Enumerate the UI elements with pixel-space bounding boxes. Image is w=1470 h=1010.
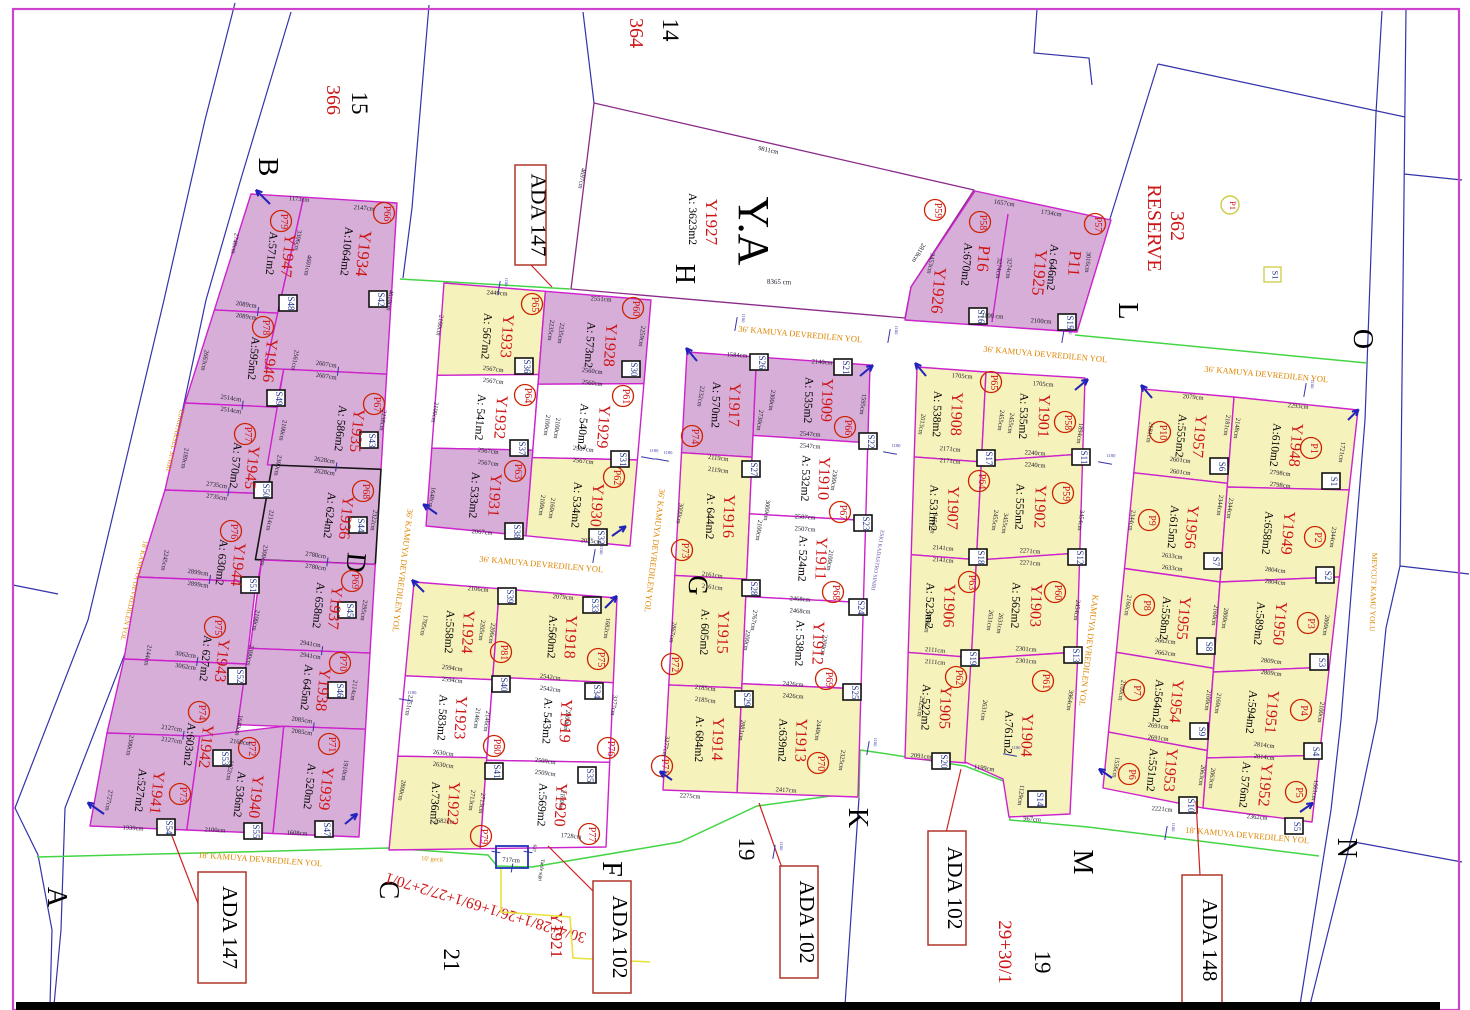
- svg-text:Y1932: Y1932: [490, 395, 510, 440]
- svg-text:S38: S38: [512, 524, 522, 539]
- svg-text:2468cm: 2468cm: [789, 595, 810, 603]
- svg-text:Y1901: Y1901: [1034, 394, 1053, 438]
- svg-text:Y1914: Y1914: [708, 717, 727, 761]
- svg-text:1584cm: 1584cm: [726, 351, 747, 359]
- svg-text:2468cm: 2468cm: [789, 607, 810, 615]
- svg-text:2507cm: 2507cm: [794, 513, 815, 521]
- svg-text:S18: S18: [976, 550, 986, 565]
- svg-text:A: 562m2: A: 562m2: [1008, 582, 1022, 629]
- svg-text:P75: P75: [595, 652, 606, 668]
- svg-text:S33: S33: [590, 598, 600, 613]
- svg-text:A: 535m2: A: 535m2: [801, 377, 815, 424]
- svg-text:A: 543m2: A: 543m2: [539, 697, 553, 744]
- svg-text:S11: S11: [1079, 451, 1089, 465]
- svg-text:2547cm: 2547cm: [799, 442, 820, 450]
- svg-text:S21: S21: [841, 360, 851, 374]
- svg-text:P68: P68: [830, 585, 841, 601]
- svg-text:S43: S43: [367, 433, 377, 448]
- svg-text:1100: 1100: [894, 326, 899, 336]
- svg-text:2547cm: 2547cm: [799, 430, 820, 438]
- svg-text:P71: P71: [326, 737, 337, 753]
- svg-text:P77: P77: [242, 427, 253, 443]
- svg-text:1100: 1100: [1107, 453, 1117, 458]
- svg-text:P76: P76: [228, 524, 239, 540]
- svg-text:Y1902: Y1902: [1030, 485, 1049, 529]
- svg-text:S22: S22: [866, 434, 876, 448]
- svg-text:P79: P79: [478, 829, 489, 845]
- svg-text:A:639m2: A:639m2: [775, 718, 789, 762]
- svg-text:S36: S36: [522, 359, 532, 374]
- svg-text:A: 535m2: A: 535m2: [1016, 393, 1030, 440]
- svg-text:Y1919: Y1919: [555, 699, 574, 743]
- svg-text:Y.A: Y.A: [729, 197, 778, 266]
- svg-text:21: 21: [439, 949, 464, 972]
- svg-text:1100: 1100: [504, 278, 509, 288]
- svg-text:P74: P74: [689, 429, 700, 445]
- svg-text:A: 523m2: A: 523m2: [922, 582, 936, 629]
- svg-text:2275cm: 2275cm: [679, 792, 700, 800]
- svg-text:1705cm: 1705cm: [951, 372, 972, 380]
- svg-text:2417cm: 2417cm: [775, 786, 796, 794]
- svg-text:P67: P67: [837, 505, 848, 521]
- svg-text:A:736m2: A:736m2: [427, 781, 441, 825]
- svg-text:P81: P81: [498, 645, 509, 661]
- svg-text:O: O: [1347, 329, 1378, 349]
- svg-text:B: B: [252, 158, 283, 177]
- svg-text:Y1916: Y1916: [719, 494, 738, 538]
- svg-text:Y1929: Y1929: [593, 404, 613, 449]
- svg-text:P70: P70: [337, 656, 348, 672]
- svg-text:S46: S46: [335, 683, 345, 698]
- svg-text:H: H: [669, 264, 700, 284]
- svg-text:P68: P68: [360, 484, 371, 500]
- svg-text:M: M: [1067, 850, 1098, 875]
- svg-text:P80: P80: [491, 739, 502, 755]
- svg-text:1100: 1100: [1310, 380, 1315, 390]
- svg-text:717cm: 717cm: [502, 857, 520, 865]
- svg-text:2240cm: 2240cm: [1024, 461, 1045, 469]
- svg-text:P60: P60: [630, 301, 641, 317]
- svg-text:S39: S39: [505, 589, 515, 604]
- svg-text:Y1904: Y1904: [1017, 713, 1036, 757]
- svg-text:S17: S17: [984, 451, 994, 466]
- svg-text:P63: P63: [512, 464, 523, 480]
- svg-text:A: 531m2: A: 531m2: [926, 484, 940, 531]
- svg-text:2271cm: 2271cm: [1019, 547, 1040, 555]
- svg-text:19: 19: [734, 838, 759, 861]
- svg-text:Y1927: Y1927: [702, 199, 721, 246]
- svg-text:S45: S45: [345, 603, 355, 618]
- svg-text:2301cm: 2301cm: [1015, 657, 1036, 665]
- svg-text:A:560m2: A:560m2: [544, 615, 558, 659]
- svg-text:1100: 1100: [664, 450, 674, 455]
- svg-text:S8: S8: [1204, 642, 1214, 652]
- svg-text:P59: P59: [932, 203, 943, 219]
- svg-text:Y1931: Y1931: [484, 473, 504, 518]
- svg-text:P74: P74: [196, 705, 207, 721]
- svg-text:S20: S20: [939, 754, 949, 769]
- svg-text:A: 3623m2: A: 3623m2: [686, 193, 698, 245]
- svg-text:1100: 1100: [741, 314, 746, 324]
- svg-text:Y1924: Y1924: [458, 610, 477, 654]
- svg-text:P7: P7: [1131, 685, 1142, 696]
- svg-text:Y1912: Y1912: [808, 621, 827, 665]
- svg-text:A:558m2: A:558m2: [442, 610, 456, 654]
- svg-text:P62: P62: [953, 670, 964, 686]
- svg-text:362: 362: [1166, 211, 1188, 241]
- svg-text:A: 644m2: A: 644m2: [703, 493, 717, 540]
- svg-text:P66: P66: [842, 420, 853, 436]
- svg-text:P79: P79: [278, 214, 289, 230]
- svg-text:2100cm: 2100cm: [204, 826, 225, 834]
- svg-text:A: 605m2: A: 605m2: [697, 609, 711, 656]
- svg-text:A: A: [41, 887, 72, 908]
- svg-text:2426cm: 2426cm: [782, 692, 803, 700]
- svg-text:Y1911: Y1911: [811, 537, 829, 581]
- svg-text:Y1908: Y1908: [947, 392, 966, 436]
- svg-text:P1: P1: [1228, 201, 1238, 210]
- svg-text:A:569m2: A:569m2: [534, 783, 548, 827]
- svg-text:P5: P5: [1293, 787, 1304, 798]
- svg-text:S24: S24: [856, 600, 866, 615]
- svg-text:S29: S29: [742, 692, 752, 707]
- svg-text:2140cm: 2140cm: [811, 358, 832, 366]
- svg-text:P11: P11: [1064, 250, 1085, 277]
- svg-text:P58: P58: [1062, 415, 1073, 431]
- svg-text:P58: P58: [977, 215, 988, 231]
- svg-text:1100: 1100: [650, 448, 660, 453]
- svg-text:19: 19: [1030, 951, 1055, 974]
- svg-text:Y1910: Y1910: [814, 456, 833, 500]
- svg-text:P61: P61: [620, 389, 631, 405]
- svg-text:8365 cm: 8365 cm: [767, 278, 792, 287]
- svg-text:P2: P2: [1312, 532, 1323, 543]
- svg-text:P8: P8: [1141, 600, 1152, 611]
- svg-text:ADA 147: ADA 147: [218, 886, 242, 969]
- svg-text:S34: S34: [592, 684, 602, 699]
- svg-text:A: 583m2: A: 583m2: [434, 694, 448, 741]
- svg-text:Y1907: Y1907: [943, 486, 962, 530]
- svg-text:P57: P57: [1092, 217, 1103, 233]
- svg-text:Y1923: Y1923: [450, 695, 469, 739]
- svg-text:S52: S52: [235, 669, 245, 683]
- svg-text:P77: P77: [586, 827, 597, 843]
- svg-text:2449cm: 2449cm: [486, 289, 507, 297]
- svg-text:S40: S40: [499, 677, 509, 692]
- svg-text:ADA 147: ADA 147: [527, 173, 551, 256]
- svg-text:P65: P65: [529, 297, 540, 313]
- svg-text:15: 15: [347, 92, 372, 115]
- svg-text:N: N: [1331, 838, 1362, 858]
- svg-text:Y1915: Y1915: [713, 610, 732, 654]
- svg-text:S47: S47: [322, 822, 332, 837]
- svg-text:P69: P69: [823, 672, 834, 688]
- svg-text:Y1920: Y1920: [550, 783, 569, 827]
- svg-text:1100: 1100: [1068, 326, 1073, 336]
- svg-text:S44: S44: [356, 518, 366, 533]
- svg-text:2240cm: 2240cm: [1024, 449, 1045, 457]
- svg-text:1100: 1100: [873, 738, 878, 748]
- svg-text:P73: P73: [679, 543, 690, 559]
- svg-text:A: 524m2: A: 524m2: [795, 535, 809, 582]
- svg-text:A: 538m2: A: 538m2: [792, 620, 806, 667]
- svg-text:P73: P73: [177, 787, 188, 803]
- svg-text:S27: S27: [749, 462, 759, 477]
- svg-text:2271cm: 2271cm: [1019, 559, 1040, 567]
- svg-text:2551cm: 2551cm: [590, 295, 611, 303]
- svg-text:Y1918: Y1918: [560, 615, 579, 659]
- svg-text:Y1928: Y1928: [600, 323, 620, 368]
- svg-text:1100: 1100: [1171, 823, 1176, 833]
- svg-text:P16: P16: [973, 244, 994, 272]
- svg-text:1100: 1100: [779, 842, 784, 852]
- svg-text:P64: P64: [522, 388, 533, 404]
- svg-text:L: L: [1112, 302, 1143, 319]
- svg-text:P72: P72: [669, 657, 680, 673]
- svg-text:P60: P60: [1052, 585, 1063, 601]
- svg-text:P78: P78: [260, 320, 271, 336]
- svg-text:A: 538m2: A: 538m2: [930, 391, 944, 438]
- svg-text:P4: P4: [1298, 705, 1309, 716]
- svg-text:P63: P63: [966, 575, 977, 591]
- svg-text:S28: S28: [749, 581, 759, 596]
- svg-text:2507cm: 2507cm: [794, 525, 815, 533]
- svg-text:S54: S54: [164, 820, 174, 835]
- svg-text:P75: P75: [212, 620, 223, 636]
- svg-text:S37: S37: [517, 441, 527, 456]
- svg-text:ADA 102: ADA 102: [608, 895, 632, 978]
- svg-text:S19: S19: [968, 651, 978, 666]
- svg-text:ADA 102: ADA 102: [795, 880, 819, 963]
- svg-text:2301cm: 2301cm: [1015, 645, 1036, 653]
- svg-text:29+30/1: 29+30/1: [994, 920, 1015, 984]
- svg-text:P6: P6: [1126, 769, 1137, 780]
- svg-text:S23: S23: [861, 516, 871, 531]
- svg-text:S1: S1: [1271, 271, 1281, 280]
- svg-text:366: 366: [322, 85, 344, 115]
- svg-text:1939cm: 1939cm: [122, 824, 143, 832]
- svg-text:RESERVE: RESERVE: [1143, 184, 1165, 271]
- svg-text:S31: S31: [618, 452, 628, 466]
- svg-text:S26: S26: [757, 355, 767, 370]
- svg-text:P3: P3: [1305, 618, 1316, 629]
- svg-text:Y1905: Y1905: [935, 685, 954, 729]
- svg-text:1100: 1100: [599, 546, 604, 556]
- svg-text:S42: S42: [376, 292, 386, 306]
- svg-text:P65: P65: [988, 375, 999, 391]
- svg-text:P70: P70: [815, 756, 826, 772]
- svg-text:S7: S7: [1211, 557, 1221, 567]
- svg-text:S35: S35: [585, 768, 595, 783]
- svg-text:Y1917: Y1917: [725, 383, 744, 427]
- svg-text:Y1903: Y1903: [1026, 583, 1045, 627]
- svg-text:S3: S3: [1317, 658, 1327, 668]
- svg-text:P76: P76: [605, 741, 616, 757]
- svg-text:F: F: [596, 861, 627, 877]
- svg-text:S41: S41: [492, 764, 502, 778]
- svg-text:P66: P66: [381, 206, 392, 222]
- svg-text:Y1913: Y1913: [791, 718, 810, 762]
- svg-text:1705cm: 1705cm: [1032, 380, 1053, 388]
- svg-text:Y1930: Y1930: [586, 483, 606, 528]
- svg-text:S13: S13: [1071, 648, 1081, 663]
- svg-text:P1: P1: [1308, 443, 1319, 454]
- svg-text:14: 14: [658, 19, 683, 43]
- svg-text:2100cm: 2100cm: [1030, 317, 1051, 325]
- svg-text:ADA 148: ADA 148: [1198, 898, 1222, 981]
- svg-text:S50: S50: [261, 483, 271, 498]
- svg-text:S9: S9: [1197, 727, 1207, 737]
- svg-text:ADA 102: ADA 102: [943, 846, 967, 929]
- svg-text:S49: S49: [274, 391, 284, 406]
- svg-text:S48: S48: [286, 296, 296, 311]
- svg-text:63?: 63?: [530, 844, 536, 853]
- svg-text:S55: S55: [251, 824, 261, 839]
- svg-text:S6: S6: [1217, 462, 1227, 472]
- svg-text:P59: P59: [1060, 486, 1071, 502]
- svg-text:S4: S4: [1311, 747, 1321, 757]
- svg-text:Y1921: Y1921: [547, 912, 566, 958]
- svg-text:A: 570m2: A: 570m2: [708, 381, 722, 428]
- svg-text:Y1922: Y1922: [443, 781, 462, 825]
- svg-text:S14: S14: [1035, 792, 1045, 807]
- svg-text:S30: S30: [629, 362, 639, 377]
- svg-text:Y1906: Y1906: [939, 584, 958, 628]
- svg-text:K: K: [842, 808, 873, 828]
- svg-text:Y1909: Y1909: [817, 378, 836, 422]
- svg-text:A: 522m2: A: 522m2: [918, 684, 932, 731]
- svg-text:1608cm: 1608cm: [286, 829, 307, 837]
- svg-text:S12: S12: [1075, 550, 1085, 564]
- svg-text:P9: P9: [1146, 515, 1157, 526]
- svg-text:P61: P61: [1040, 674, 1051, 690]
- svg-text:A: 532m2: A: 532m2: [798, 455, 812, 502]
- svg-text:P67: P67: [371, 397, 382, 413]
- svg-text:P62: P62: [611, 470, 622, 486]
- svg-text:1100: 1100: [1012, 745, 1022, 750]
- svg-text:A: 684m2: A: 684m2: [692, 716, 706, 763]
- svg-text:P64: P64: [976, 474, 987, 490]
- svg-text:P10: P10: [1157, 425, 1168, 441]
- svg-text:1100: 1100: [408, 690, 418, 695]
- svg-text:1100: 1100: [892, 443, 902, 448]
- svg-text:2426cm: 2426cm: [782, 680, 803, 688]
- svg-text:Y1933: Y1933: [496, 314, 516, 359]
- svg-text:S1: S1: [1329, 477, 1339, 487]
- svg-text:S5: S5: [1292, 822, 1302, 832]
- svg-text:S51: S51: [248, 578, 258, 592]
- svg-text:S25: S25: [850, 685, 860, 700]
- svg-text:S2: S2: [1323, 571, 1333, 581]
- svg-text:A: 555m2: A: 555m2: [1012, 483, 1026, 530]
- svg-text:P69: P69: [349, 574, 360, 590]
- svg-text:S10: S10: [1186, 798, 1196, 813]
- svg-text:364: 364: [625, 18, 647, 48]
